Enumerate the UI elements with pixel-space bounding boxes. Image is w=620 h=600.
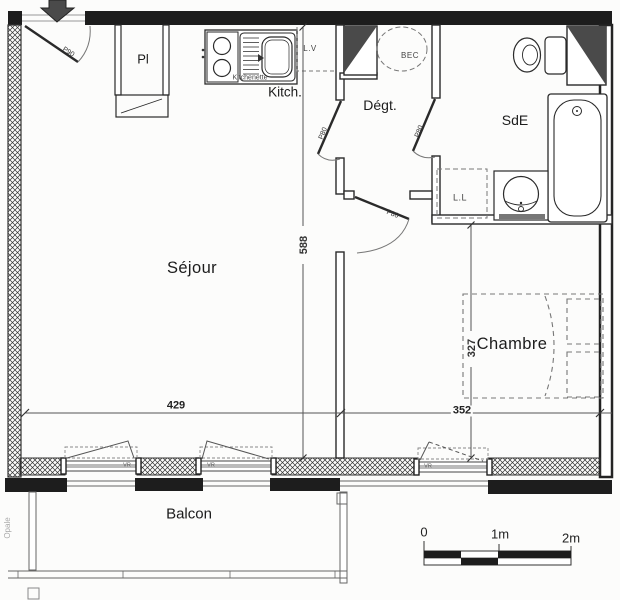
entry-door xyxy=(25,26,90,62)
dim-chambre-width: 352 xyxy=(451,406,473,417)
window-1 xyxy=(61,441,141,474)
room-label-balcon: Balcon xyxy=(166,507,212,522)
closet-placard xyxy=(115,25,169,117)
washer-label: L.L xyxy=(453,194,467,203)
scale-label-0: 0 xyxy=(420,526,427,539)
scale-label-2m: 2m xyxy=(562,532,580,545)
water-heater-label: BEC xyxy=(401,52,419,60)
washbasin-icon xyxy=(494,171,548,220)
window-2 xyxy=(196,441,276,474)
room-label-sejour: Séjour xyxy=(167,260,217,277)
technical-duct-degt xyxy=(344,26,377,75)
entrance-arrow-icon xyxy=(41,0,74,22)
dishwasher-label: L.V xyxy=(303,45,317,53)
interior-walls xyxy=(336,25,612,458)
scale-bar xyxy=(424,541,571,565)
door-degt-sde-label: P80 xyxy=(414,124,425,138)
bathtub-icon xyxy=(548,94,607,222)
closet-label-pl: Pl xyxy=(137,53,149,66)
water-heater-circle xyxy=(377,27,427,71)
kitchenette-label: Kitchenette xyxy=(232,75,267,82)
dimension-lines xyxy=(21,24,612,462)
watermark: Opale xyxy=(3,517,12,539)
room-label-degt: Dégt. xyxy=(363,98,396,112)
room-label-kitch: Kitch. xyxy=(268,85,302,99)
door-degt-chambre-label: P80 xyxy=(385,209,399,220)
plan-linework: 588 327 P90 P80 P80 P80 Opale xyxy=(0,0,620,600)
room-label-chambre: Chambre xyxy=(477,336,548,353)
window-2-shutter-label: VR xyxy=(207,463,215,469)
floor-plan: 588 327 P90 P80 P80 P80 Opale Séjour Cha… xyxy=(0,0,620,600)
room-label-sde: SdE xyxy=(502,113,528,127)
window-1-shutter-label: VR xyxy=(123,463,131,469)
door-degt-chambre xyxy=(355,197,409,253)
scale-label-1m: 1m xyxy=(491,528,509,541)
window-3-shutter-label: VR xyxy=(424,464,432,470)
toilet-icon xyxy=(514,37,567,74)
dim-sejour-width: 429 xyxy=(165,401,187,412)
technical-duct-sde xyxy=(567,26,606,85)
dim-sejour-length: 588 xyxy=(298,236,310,254)
window-3 xyxy=(414,442,492,475)
